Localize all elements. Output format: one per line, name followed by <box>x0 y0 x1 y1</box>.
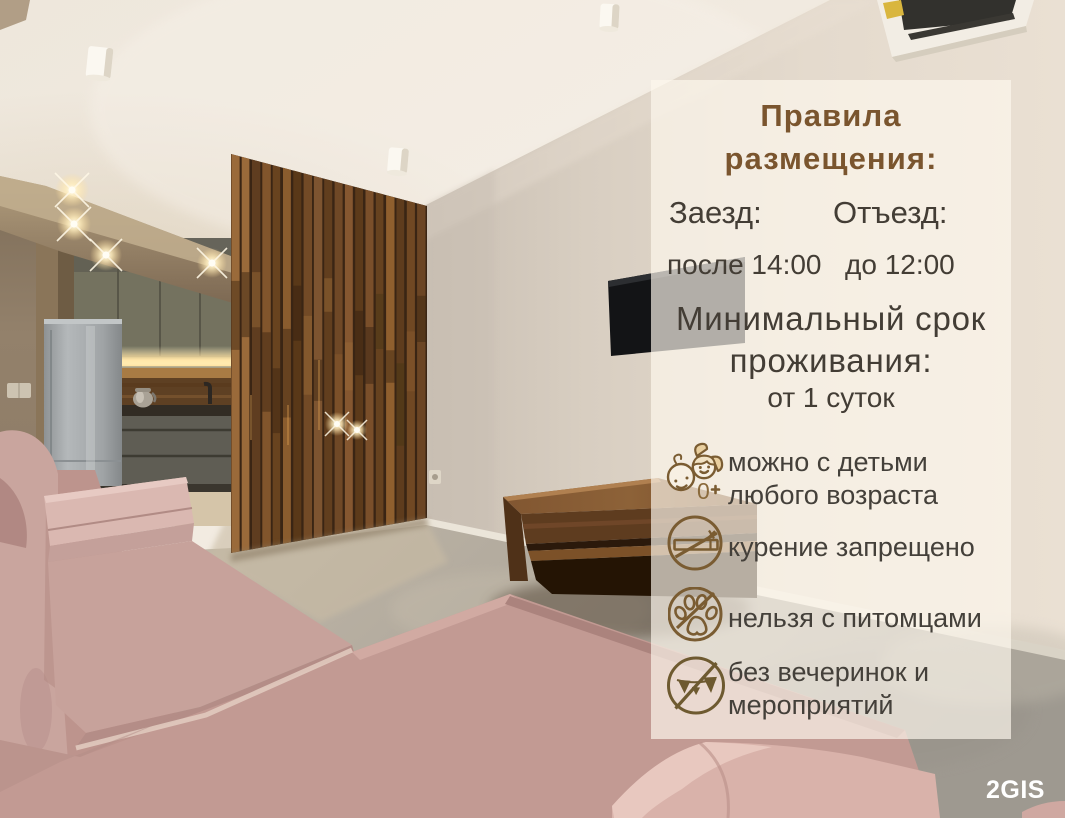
svg-text:0: 0 <box>697 478 710 503</box>
